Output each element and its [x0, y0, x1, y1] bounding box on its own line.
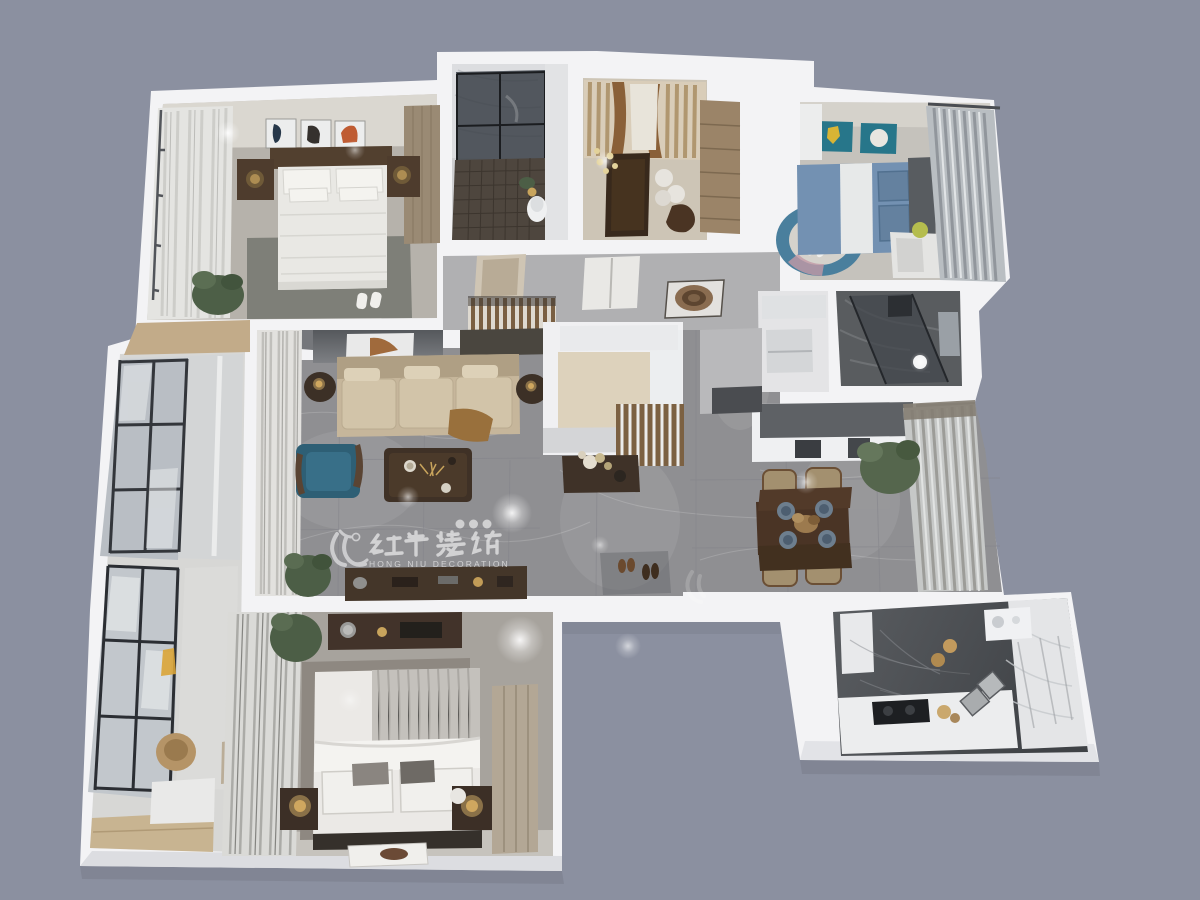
svg-text:HONG NIU DECORATION: HONG NIU DECORATION — [369, 559, 510, 569]
